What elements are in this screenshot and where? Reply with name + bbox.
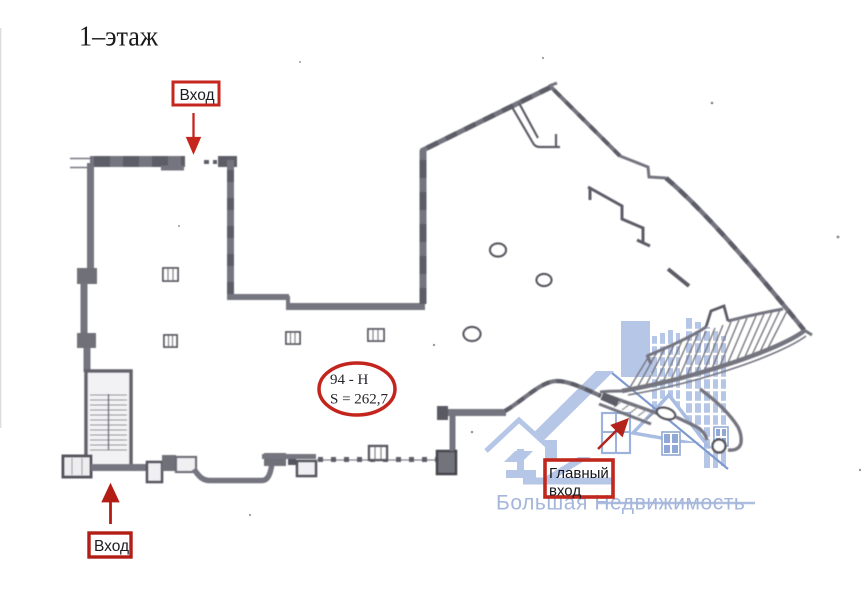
svg-text:Главный: Главный: [549, 465, 609, 482]
svg-text:Вход: Вход: [180, 87, 215, 104]
svg-text:S = 262,7: S = 262,7: [330, 392, 389, 408]
svg-text:вход: вход: [549, 483, 581, 500]
svg-text:94 - Н: 94 - Н: [330, 372, 368, 388]
svg-text:Вход: Вход: [94, 538, 129, 555]
svg-text:1–этаж: 1–этаж: [79, 21, 159, 53]
svg-text:Большая Недвижимость: Большая Недвижимость: [496, 492, 745, 515]
